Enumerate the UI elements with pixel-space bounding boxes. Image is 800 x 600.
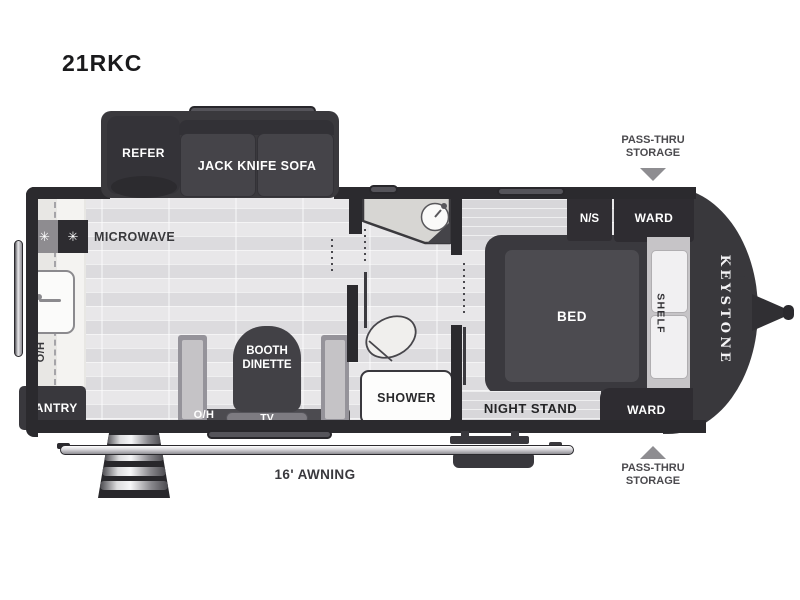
bath-door-swing-dots <box>364 229 366 265</box>
rear-grab-handle <box>14 240 23 357</box>
corner-vanity-sink <box>361 193 453 246</box>
wall-bedroom-partition <box>451 325 462 425</box>
pass-thru-front-line2: STORAGE <box>598 147 708 160</box>
nightstand-top-label: N/S <box>580 213 599 225</box>
window-bottom <box>207 430 332 439</box>
arrow-up-icon <box>640 446 666 459</box>
nightstand-top: N/S <box>567 196 612 241</box>
bedroom-door-swing-dots <box>463 263 465 317</box>
shower: SHOWER <box>360 370 453 425</box>
shower-label: SHOWER <box>377 391 436 405</box>
wall-rear <box>26 187 38 437</box>
pass-thru-annotation-rear: PASS-THRU STORAGE <box>598 462 708 492</box>
step-tread <box>100 481 168 490</box>
wall-top-rear <box>26 187 110 199</box>
underbelly-bracket-bar <box>450 436 529 444</box>
step-tread <box>106 435 162 444</box>
dinette-label-line1: BOOTH <box>246 344 288 358</box>
pass-thru-rear-line1: PASS-THRU <box>598 462 708 475</box>
wall-bath-top <box>349 193 362 234</box>
dinette-table: BOOTH DINETTE <box>233 326 301 412</box>
entry-steps <box>98 430 170 498</box>
burner-icon: ✳ <box>68 229 79 245</box>
faucet-knob-icon <box>441 203 447 209</box>
stove-right-half: ✳ <box>58 220 88 253</box>
wall-bath-right <box>451 195 462 255</box>
arrow-down-icon <box>640 168 666 181</box>
bed-label: BED <box>557 309 587 324</box>
overhead-cabinet-dots <box>331 239 333 273</box>
pass-thru-front-line1: PASS-THRU <box>598 134 708 147</box>
faucet-icon <box>39 299 61 302</box>
night-stand-label: NIGHT STAND <box>484 401 577 416</box>
pass-thru-annotation-front: PASS-THRU STORAGE <box>598 134 708 164</box>
wardrobe-bottom-label: WARD <box>627 403 666 417</box>
pass-thru-rear-line2: STORAGE <box>598 475 708 488</box>
toilet-icon <box>362 308 420 366</box>
step-tread <box>102 467 166 476</box>
wall-bath-left <box>347 285 358 362</box>
shelf-label: SHELF <box>654 264 669 364</box>
window-top-1 <box>369 185 398 194</box>
bed-head-cabinet <box>461 199 568 240</box>
wardrobe-top: WARD <box>614 194 694 242</box>
sofa-label: JACK KNIFE SOFA <box>180 159 334 173</box>
microwave-label: MICROWAVE <box>94 229 175 244</box>
awning-rail <box>60 445 574 455</box>
bed-mattress: BED <box>505 250 639 382</box>
wardrobe-top-label: WARD <box>635 211 674 225</box>
refrigerator-vent-icon <box>111 176 177 198</box>
model-title: 21RKC <box>62 50 142 76</box>
awning-label: 16' AWNING <box>240 465 390 483</box>
window-top-2 <box>497 187 565 196</box>
burner-icon: ✳ <box>39 229 50 245</box>
dinette-bench-right-cushion <box>325 340 345 419</box>
bedroom-door-leaf <box>463 327 466 385</box>
dinette-label-line2: DINETTE <box>242 358 291 372</box>
floorplan-canvas: 21RKC ✳ ✳ O/H PANTRY MICROWAVE BOOTH DIN… <box>0 0 800 600</box>
refrigerator-label: REFER <box>107 146 180 160</box>
brand-wordmark: KEYSTONE <box>716 250 734 370</box>
